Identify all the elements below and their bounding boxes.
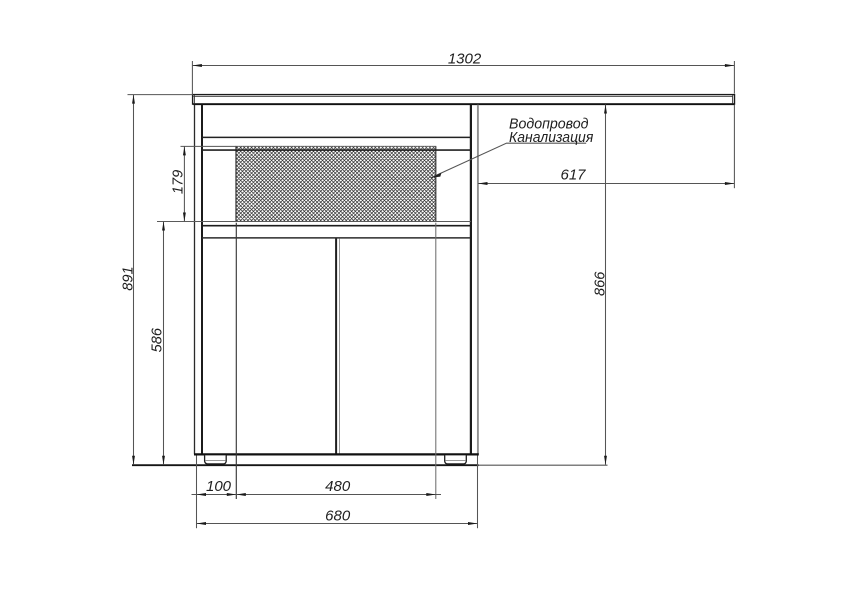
- svg-text:617: 617: [560, 167, 586, 184]
- svg-text:680: 680: [325, 507, 351, 524]
- svg-text:480: 480: [325, 478, 351, 495]
- svg-text:891: 891: [120, 266, 136, 290]
- svg-text:866: 866: [592, 271, 608, 296]
- svg-text:100: 100: [206, 478, 232, 495]
- svg-text:Канализация: Канализация: [509, 130, 593, 146]
- svg-text:586: 586: [149, 327, 165, 352]
- svg-text:179: 179: [170, 170, 186, 194]
- svg-text:1302: 1302: [448, 50, 482, 67]
